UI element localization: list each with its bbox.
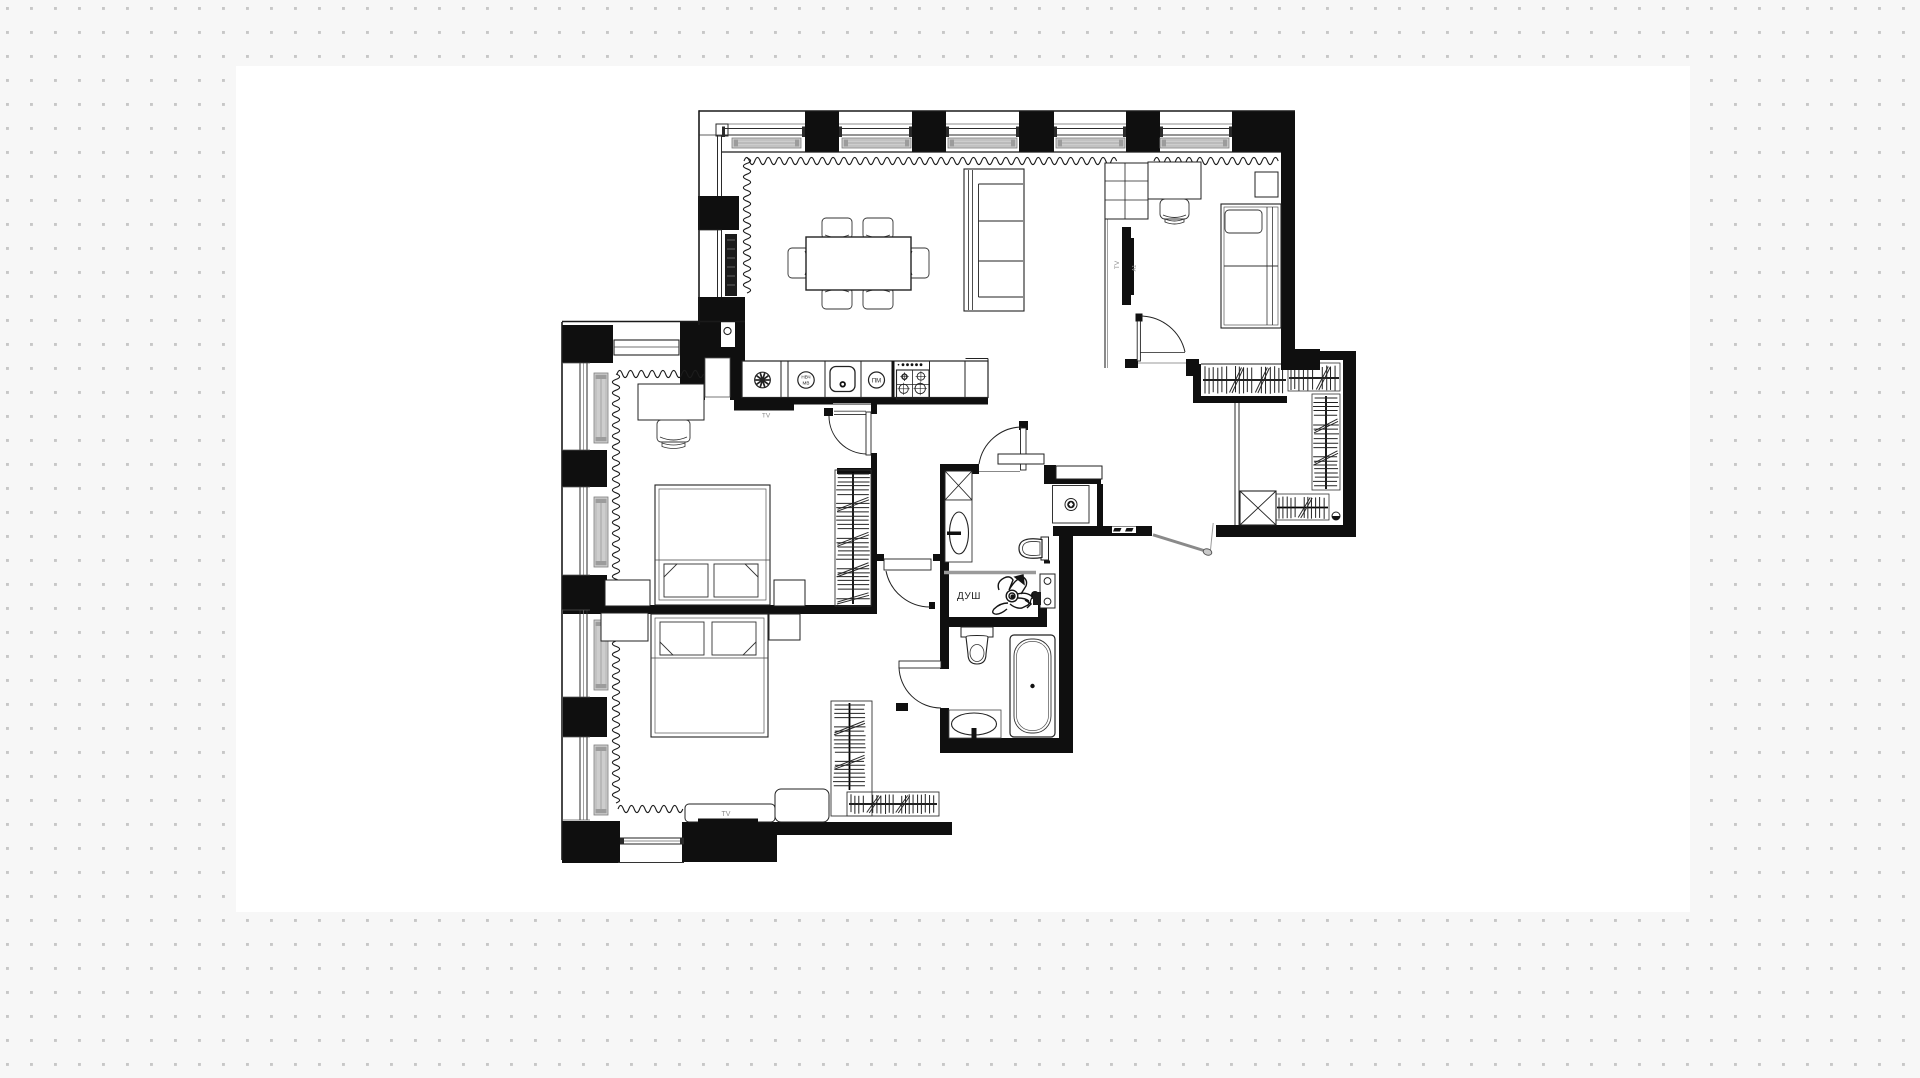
svg-text:TV: TV bbox=[722, 811, 731, 818]
svg-text:ПМ: ПМ bbox=[872, 378, 881, 384]
svg-text:A1: A1 bbox=[1132, 265, 1138, 272]
svg-text:НВЧ: НВЧ bbox=[801, 375, 810, 380]
svg-text:ДУШ: ДУШ bbox=[957, 591, 981, 602]
svg-text:МВ: МВ bbox=[803, 381, 810, 386]
svg-text:TV: TV bbox=[762, 413, 771, 420]
svg-text:TV: TV bbox=[1114, 260, 1121, 269]
